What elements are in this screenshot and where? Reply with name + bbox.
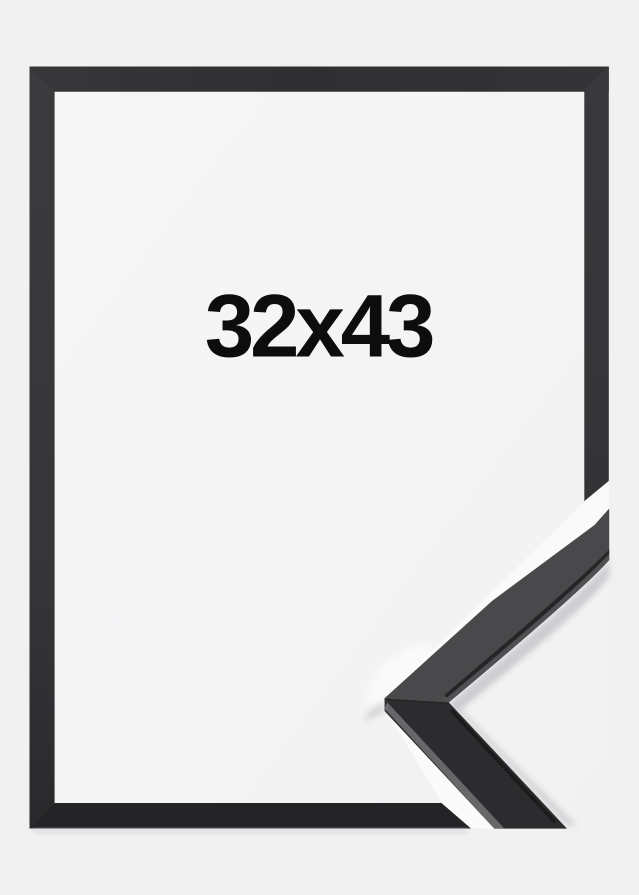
svg-text:32x43: 32x43 — [205, 276, 433, 376]
